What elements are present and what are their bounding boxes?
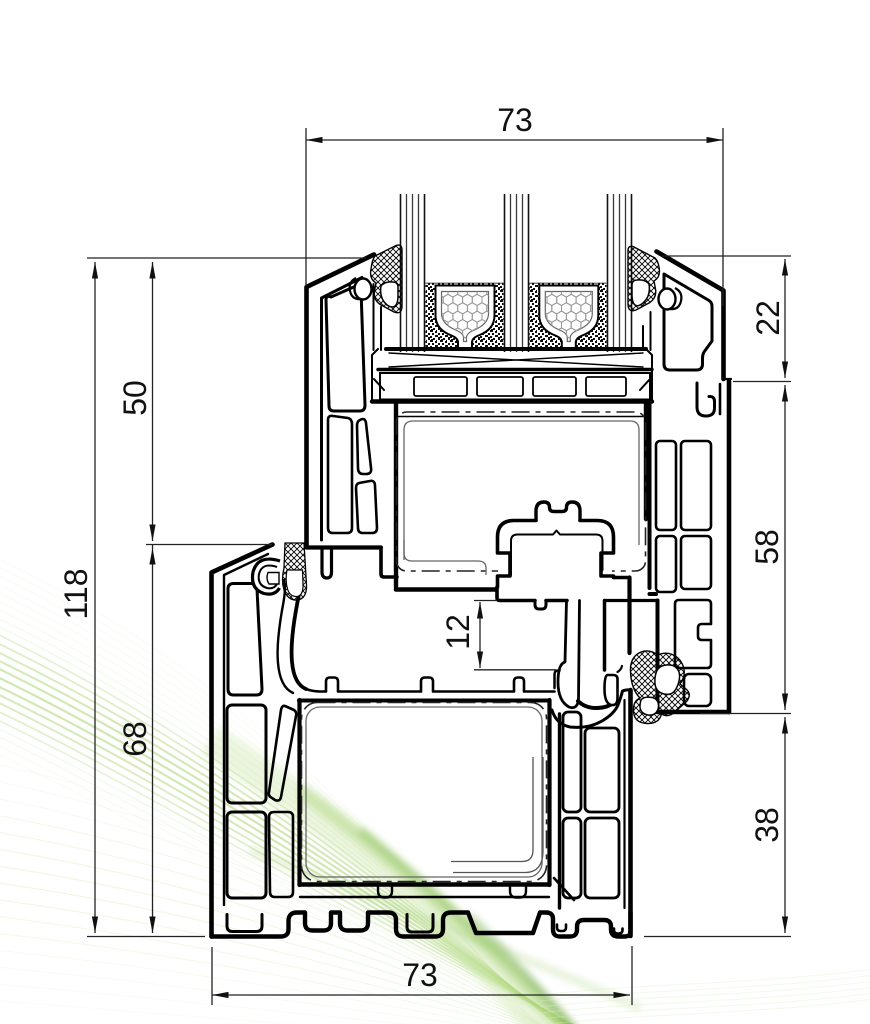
svg-text:118: 118 [58,568,94,619]
svg-text:73: 73 [402,957,438,993]
svg-text:68: 68 [117,721,153,757]
svg-text:73: 73 [497,102,533,138]
svg-text:22: 22 [750,300,786,336]
svg-text:12: 12 [440,614,476,650]
svg-text:58: 58 [749,529,785,565]
svg-text:50: 50 [117,380,153,416]
svg-text:38: 38 [749,807,785,843]
